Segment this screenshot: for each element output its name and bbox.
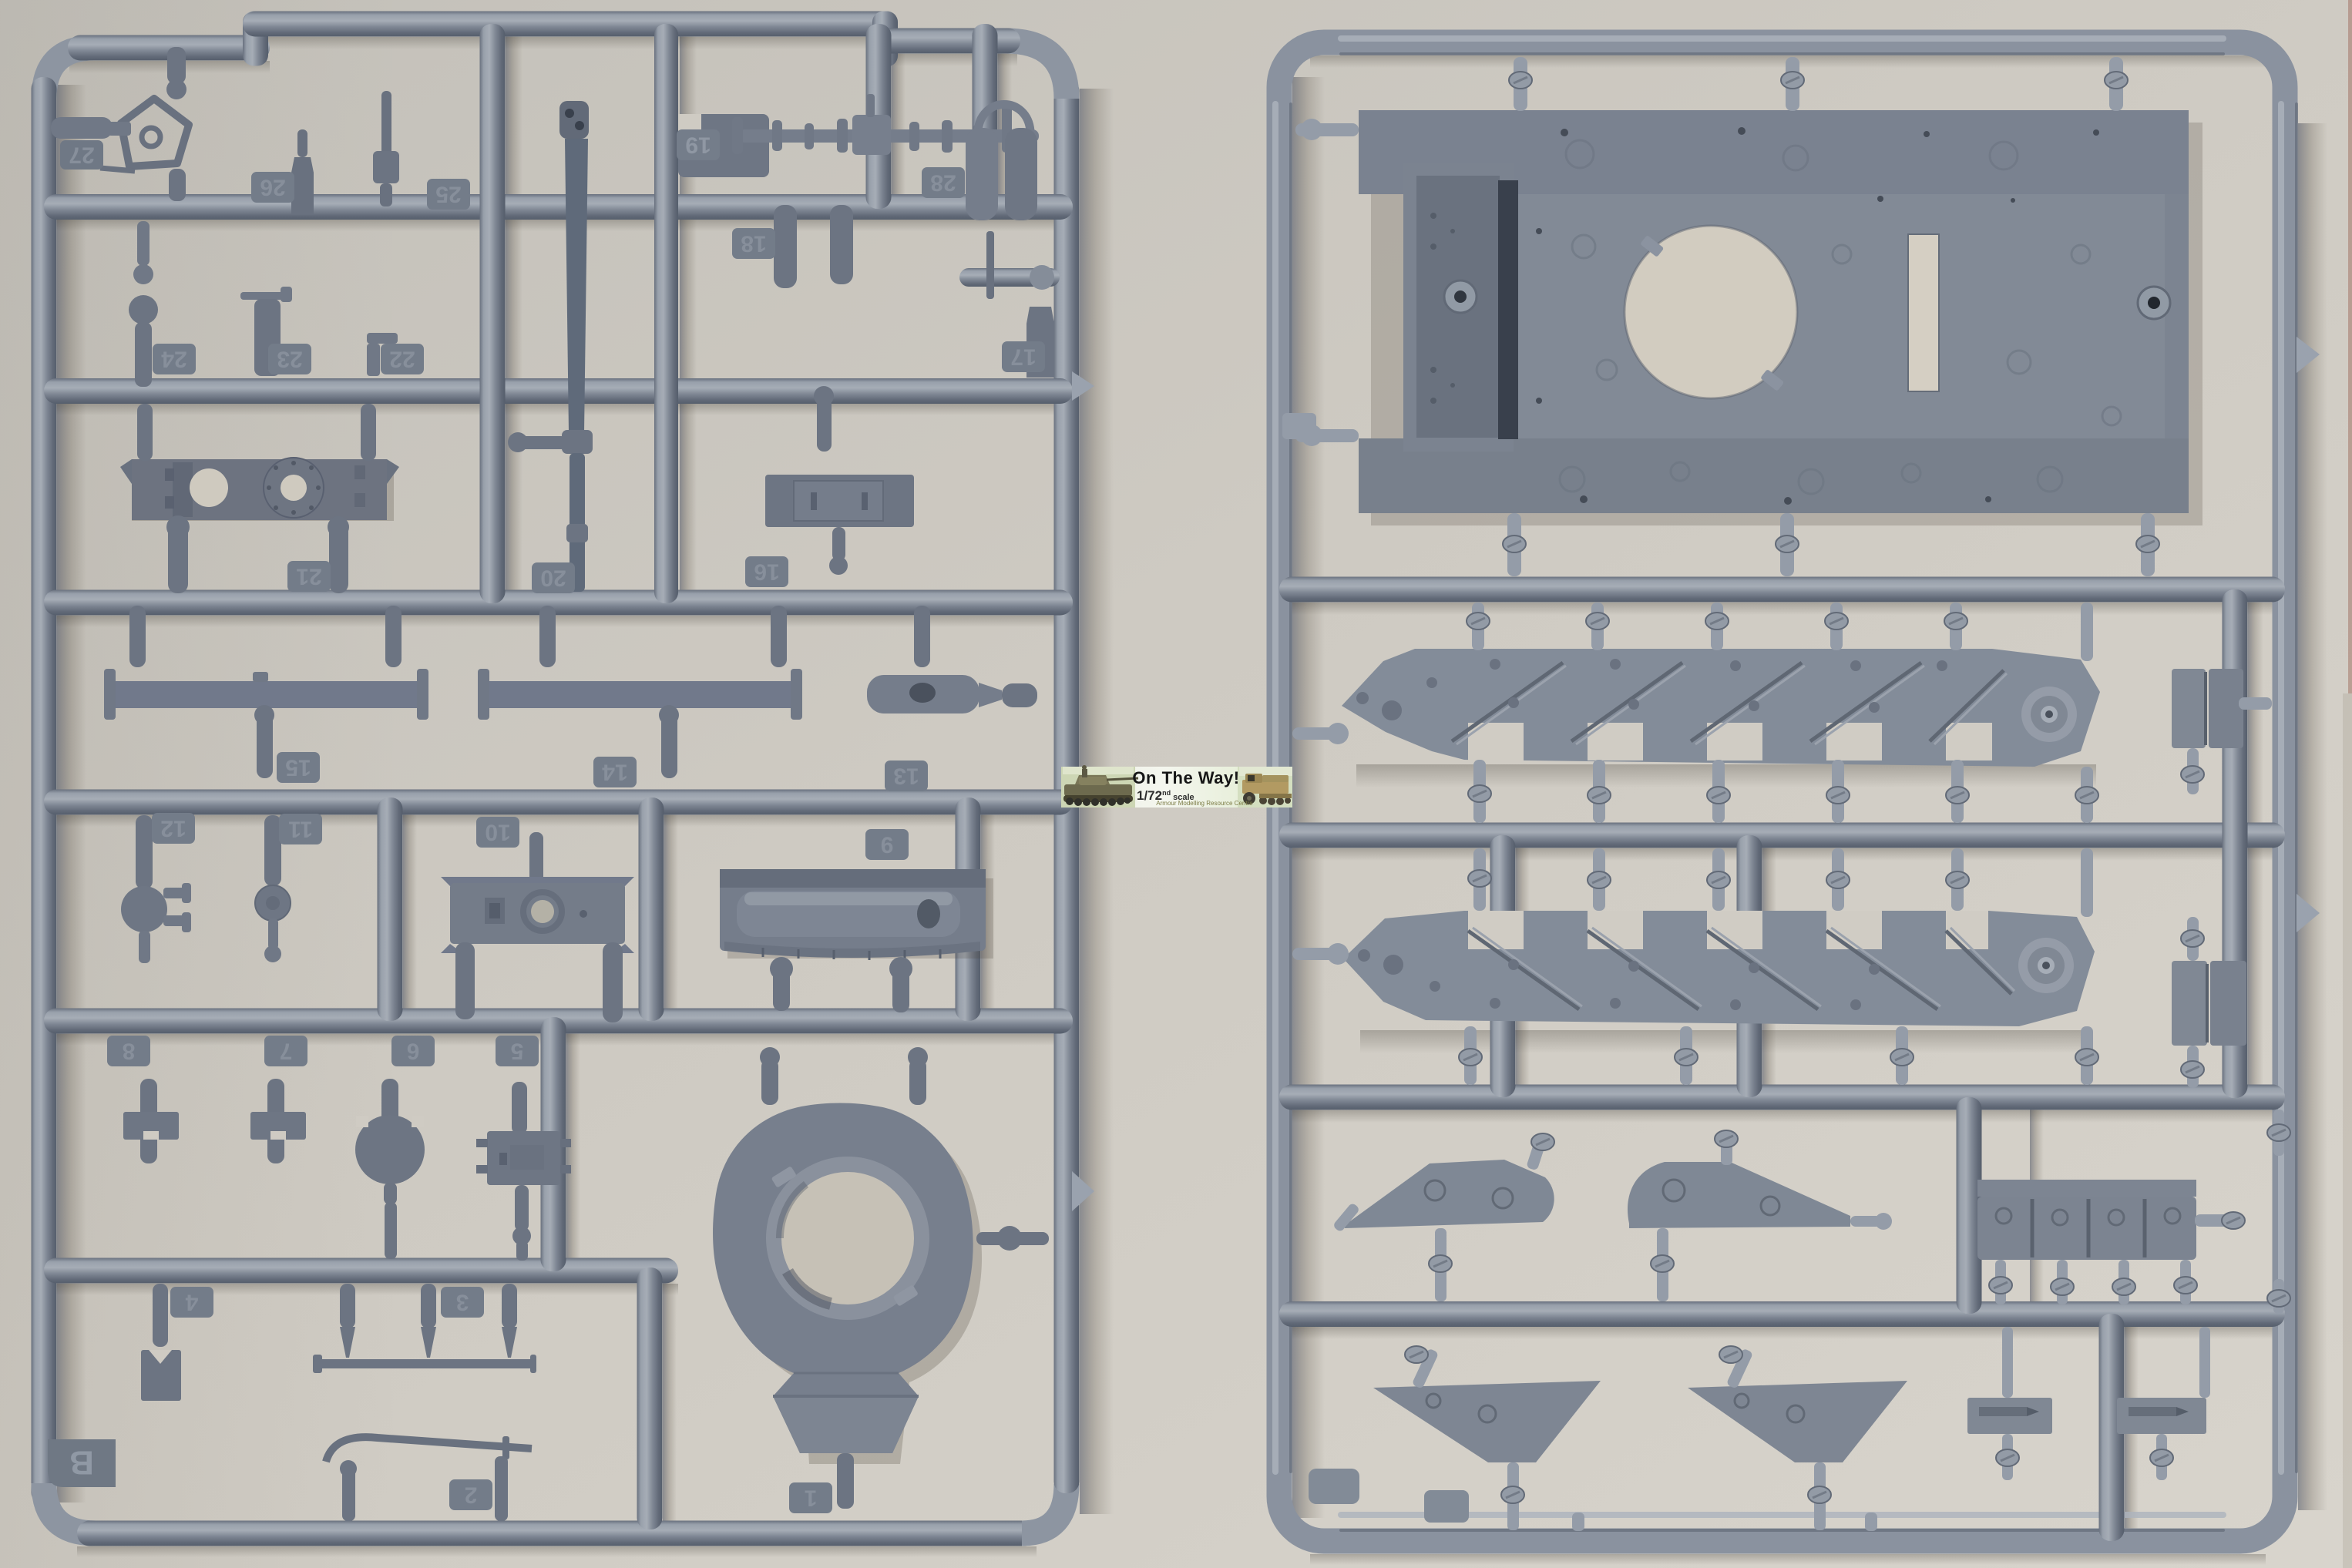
svg-text:27: 27 — [69, 143, 94, 168]
svg-text:20: 20 — [540, 566, 566, 591]
svg-text:7: 7 — [280, 1039, 293, 1064]
svg-text:12: 12 — [160, 816, 186, 841]
svg-text:Armour Modelling Resource Cent: Armour Modelling Resource Centre — [1156, 800, 1253, 807]
svg-text:24: 24 — [161, 347, 187, 372]
svg-text:15: 15 — [285, 755, 311, 781]
svg-text:14: 14 — [602, 760, 628, 785]
svg-text:10: 10 — [485, 820, 510, 845]
svg-text:26: 26 — [260, 175, 285, 200]
svg-text:9: 9 — [881, 832, 894, 858]
svg-text:8: 8 — [123, 1039, 136, 1064]
svg-text:On The Way!: On The Way! — [1132, 768, 1239, 787]
svg-text:17: 17 — [1010, 344, 1036, 370]
svg-text:23: 23 — [277, 347, 302, 372]
svg-text:1: 1 — [805, 1486, 818, 1511]
svg-text:16: 16 — [754, 559, 779, 585]
svg-text:B: B — [69, 1444, 94, 1482]
svg-text:18: 18 — [741, 231, 766, 257]
svg-text:22: 22 — [389, 347, 415, 372]
svg-text:28: 28 — [930, 170, 956, 196]
svg-text:13: 13 — [893, 764, 919, 789]
svg-text:4: 4 — [185, 1290, 198, 1315]
svg-text:11: 11 — [288, 817, 313, 842]
svg-text:6: 6 — [407, 1039, 420, 1064]
svg-text:2: 2 — [465, 1482, 478, 1508]
svg-text:5: 5 — [511, 1039, 524, 1064]
svg-text:25: 25 — [435, 182, 461, 207]
svg-text:3: 3 — [456, 1290, 469, 1315]
svg-text:19: 19 — [685, 133, 711, 158]
svg-text:21: 21 — [296, 564, 321, 589]
